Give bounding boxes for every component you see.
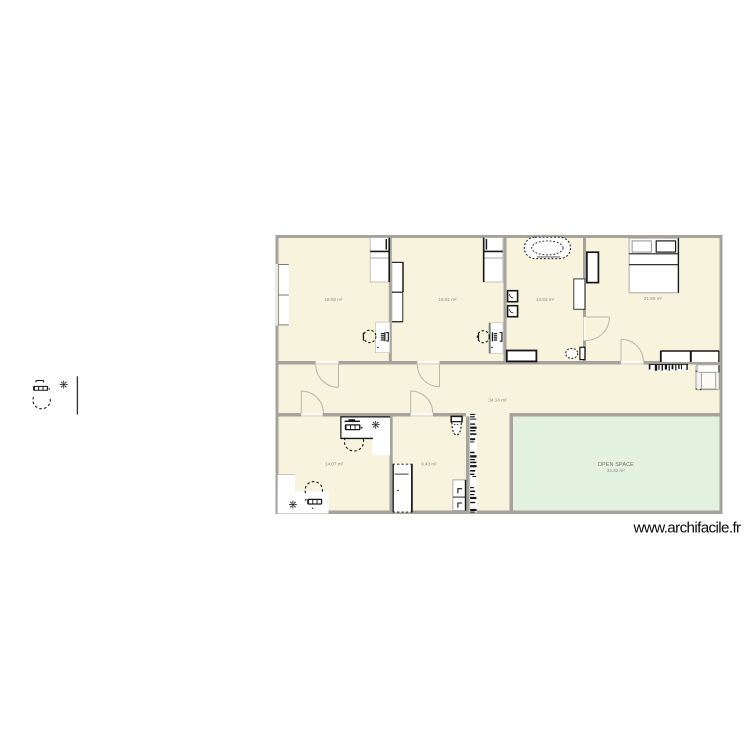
- svg-text:12.83 m²: 12.83 m²: [536, 297, 555, 302]
- svg-text:34.14 m²: 34.14 m²: [488, 398, 507, 403]
- svg-text:www.archifacile.fr: www.archifacile.fr: [633, 520, 742, 537]
- svg-text:21.86 m²: 21.86 m²: [644, 296, 663, 301]
- svg-text:18.02 m²: 18.02 m²: [438, 297, 457, 302]
- svg-text:34.32 m²: 34.32 m²: [607, 468, 626, 473]
- svg-text:14.07 m²: 14.07 m²: [325, 462, 344, 467]
- svg-text:9.43 m²: 9.43 m²: [421, 462, 437, 467]
- svg-text:18.08 m²: 18.08 m²: [324, 297, 343, 302]
